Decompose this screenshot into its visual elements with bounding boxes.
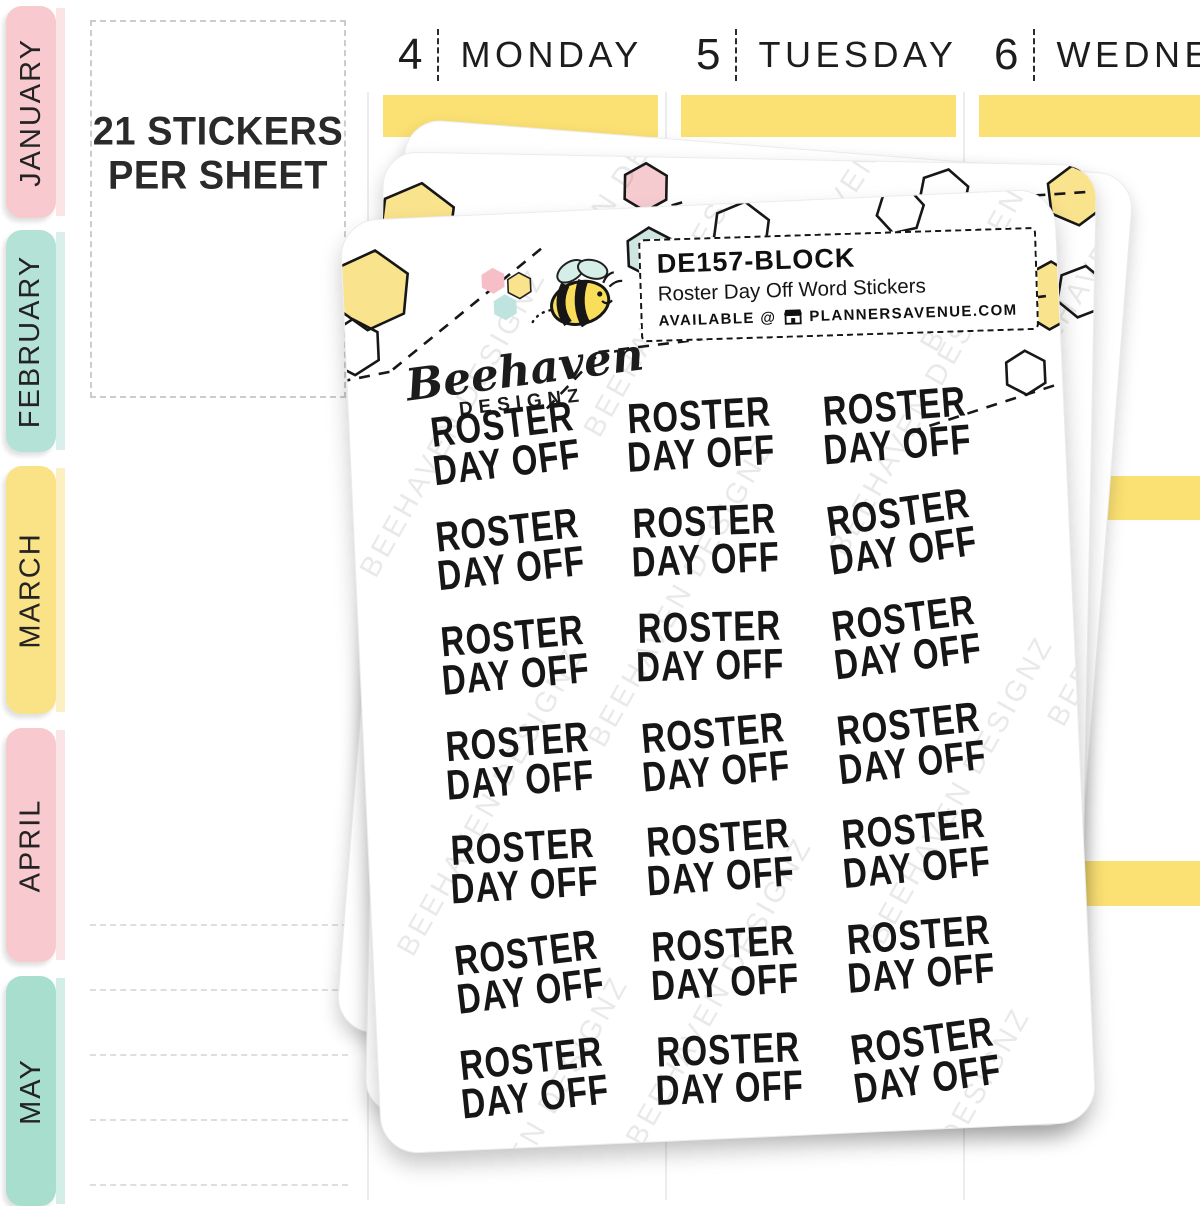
month-tab-april: APRIL bbox=[6, 728, 56, 962]
day-header: 5 TUESDAY bbox=[666, 26, 957, 84]
day-header: 4 MONDAY bbox=[368, 26, 643, 84]
writing-line bbox=[90, 1054, 348, 1056]
day-number: 6 bbox=[994, 30, 1018, 80]
highlight-bar bbox=[979, 95, 1200, 137]
day-number: 4 bbox=[398, 30, 422, 80]
sticker-grid: ROSTERDAY OFFROSTERDAY OFFROSTERDAY OFFR… bbox=[404, 368, 1025, 1135]
writing-line bbox=[90, 1119, 348, 1121]
sticker-count-box: 21 STICKERS PER SHEET bbox=[90, 20, 346, 398]
writing-line bbox=[90, 924, 348, 926]
day-name: TUESDAY bbox=[758, 34, 957, 76]
month-tab-label: APRIL bbox=[15, 798, 48, 892]
month-tab-label: JANUARY bbox=[15, 38, 48, 187]
month-tab-february: FEBRUARY bbox=[6, 230, 56, 452]
day-name: WEDNESDAY bbox=[1056, 34, 1200, 76]
highlight-bar bbox=[681, 95, 956, 137]
month-tab-may: MAY bbox=[6, 976, 56, 1206]
sticker-roster-day-off: ROSTERDAY OFF bbox=[429, 1000, 638, 1155]
month-tab-label: FEBRUARY bbox=[15, 254, 48, 427]
product-label: DE157-BLOCK Roster Day Off Word Stickers… bbox=[638, 227, 1039, 342]
month-tab-label: MARCH bbox=[15, 532, 48, 648]
day-number: 5 bbox=[696, 30, 720, 80]
sticker-sheet-front: Beehaven DESIGNZ DE157-BLOCK Roster Day … bbox=[339, 188, 1097, 1155]
day-name: MONDAY bbox=[460, 34, 642, 76]
availability-prefix: AVAILABLE @ bbox=[658, 309, 776, 330]
writing-line bbox=[90, 989, 348, 991]
month-tab-march: MARCH bbox=[6, 466, 56, 714]
day-header-divider bbox=[735, 29, 737, 81]
sticker-count-line2: PER SHEET bbox=[92, 153, 344, 200]
storefront-icon bbox=[782, 307, 804, 326]
day-header-divider bbox=[1033, 29, 1035, 81]
sticker-count-line1: 21 STICKERS bbox=[92, 109, 344, 156]
sticker-roster-day-off: ROSTERDAY OFF bbox=[818, 980, 1031, 1141]
planner-page: JANUARY FEBRUARY MARCH APRIL MAY 21 STIC… bbox=[0, 0, 1200, 1200]
sticker-roster-day-off: ROSTERDAY OFF bbox=[629, 998, 830, 1141]
availability-site: PLANNERSAVENUE.COM bbox=[809, 301, 1018, 325]
day-header: 6 WEDNESDAY bbox=[964, 26, 1200, 84]
writing-line bbox=[90, 1184, 348, 1186]
day-header-divider bbox=[437, 29, 439, 81]
month-tab-january: JANUARY bbox=[6, 6, 56, 218]
month-tab-label: MAY bbox=[15, 1058, 48, 1125]
